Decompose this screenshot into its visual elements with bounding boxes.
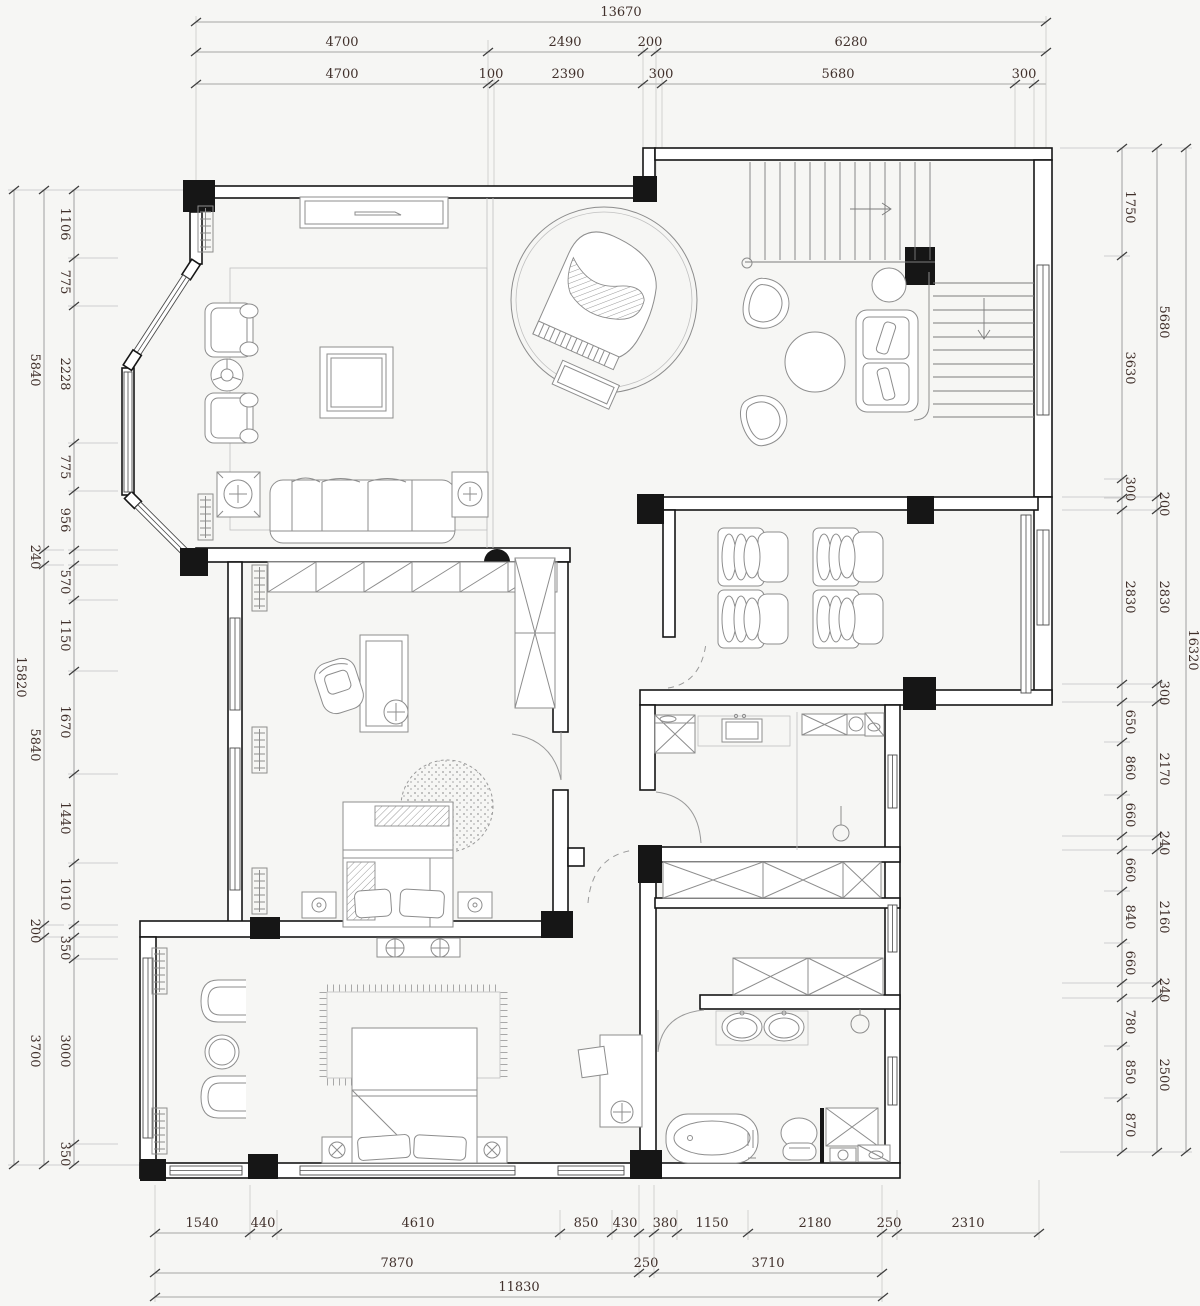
dim-label: 2310 xyxy=(951,1216,984,1231)
dim-label: 5840 xyxy=(27,353,42,386)
dim-label: 250 xyxy=(634,1256,659,1271)
loveseat xyxy=(856,310,918,412)
dim-label: 2830 xyxy=(1156,580,1171,613)
dim-label: 840 xyxy=(1122,905,1137,930)
furniture-living-room xyxy=(205,197,488,543)
door-bath-mid xyxy=(656,792,701,843)
dim-label: 300 xyxy=(1156,681,1171,706)
dim-label: 780 xyxy=(1122,1010,1137,1035)
dim-label: 1750 xyxy=(1122,190,1137,223)
sofa xyxy=(270,478,455,543)
dim-label: 15820 xyxy=(13,656,28,697)
grand-piano xyxy=(517,222,673,409)
round-table xyxy=(205,1035,239,1069)
lounge-chair xyxy=(735,388,794,450)
dim-label: 1540 xyxy=(185,1216,218,1231)
laundry-cabinet xyxy=(802,713,884,736)
furniture-bottom-bath xyxy=(666,1009,890,1163)
armchair xyxy=(205,393,258,443)
dim-label: 250 xyxy=(877,1216,902,1231)
dim-label: 650 xyxy=(1122,710,1137,735)
dimensions-left: 15820 5840 240 5840 200 3700 1106 775 22… xyxy=(8,186,196,1169)
dim-label: 200 xyxy=(638,35,663,50)
dim-label: 775 xyxy=(57,270,72,295)
recliner-chair xyxy=(718,528,788,586)
dim-label: 350 xyxy=(57,1142,72,1167)
radiator-icon xyxy=(252,565,267,611)
floor-drain-icon xyxy=(833,806,849,841)
dim-label: 380 xyxy=(653,1216,678,1231)
dim-label: 4700 xyxy=(325,67,358,82)
dim-label: 660 xyxy=(1122,858,1137,883)
shower-glass xyxy=(826,1108,878,1146)
small-table xyxy=(872,268,906,302)
dim-label: 240 xyxy=(1156,831,1171,856)
coffee-table xyxy=(320,347,393,418)
dim-label: 2500 xyxy=(1156,1058,1171,1091)
dim-label: 4700 xyxy=(325,35,358,50)
dim-label: 13670 xyxy=(600,5,641,20)
radiator-icon xyxy=(252,868,267,914)
dim-label: 850 xyxy=(1122,1060,1137,1085)
furniture-middle-bath xyxy=(655,712,884,898)
dim-label: 240 xyxy=(27,545,42,570)
toilet xyxy=(781,1118,817,1160)
dim-label: 5680 xyxy=(821,67,854,82)
dim-label: 7870 xyxy=(380,1256,413,1271)
floor-plan-canvas: 13670 4700 2490 200 6280 4700 100 2390 3… xyxy=(0,0,1200,1306)
wardrobe-tall xyxy=(515,558,555,708)
floor-plan-drawing: 13670 4700 2490 200 6280 4700 100 2390 3… xyxy=(0,0,1200,1306)
dim-label: 430 xyxy=(613,1216,638,1231)
dim-label: 3000 xyxy=(57,1034,72,1067)
furniture-dressing xyxy=(733,958,883,995)
nightstand xyxy=(322,1137,352,1163)
dim-label: 200 xyxy=(1156,492,1171,517)
round-table xyxy=(785,332,845,392)
stairs-down-arrow-icon xyxy=(978,298,990,339)
stairs-up-arrow-icon xyxy=(850,203,891,215)
recliner-chair xyxy=(813,590,883,648)
dim-label: 775 xyxy=(57,455,72,480)
dim-label: 350 xyxy=(57,936,72,961)
writing-desk xyxy=(578,1035,642,1127)
dim-label: 300 xyxy=(1012,67,1037,82)
door-bath-bottom xyxy=(658,1010,704,1052)
dim-label: 300 xyxy=(649,67,674,82)
tv-cabinet xyxy=(300,197,448,228)
door-bedroom-mid xyxy=(512,732,561,780)
dim-label: 100 xyxy=(479,67,504,82)
dim-label: 660 xyxy=(1122,951,1137,976)
dim-label: 3700 xyxy=(27,1034,42,1067)
sink-cabinet xyxy=(655,715,695,753)
dim-label: 570 xyxy=(57,570,72,595)
recliner-chair xyxy=(813,528,883,586)
shower-corner-sink xyxy=(830,1145,890,1162)
dim-label: 3630 xyxy=(1122,351,1137,384)
dim-label: 4610 xyxy=(401,1216,434,1231)
dimensions-top: 13670 4700 2490 200 6280 4700 100 2390 3… xyxy=(191,5,1051,198)
dim-label: 440 xyxy=(251,1216,276,1231)
side-round-table xyxy=(211,359,243,391)
sofa-side-table xyxy=(452,472,488,517)
dim-label: 1106 xyxy=(57,207,72,240)
furniture-middle-bedroom xyxy=(252,558,557,927)
door-corridor xyxy=(588,850,634,903)
dim-label: 1150 xyxy=(695,1216,728,1231)
wardrobe-top xyxy=(268,562,557,592)
dim-label: 2830 xyxy=(1122,580,1137,613)
reading-chair xyxy=(201,980,246,1022)
desk xyxy=(360,635,408,732)
dim-label: 2180 xyxy=(798,1216,831,1231)
dim-label: 2160 xyxy=(1156,900,1171,933)
radiator-icon xyxy=(252,727,267,773)
dimensions-bottom: 1540 440 4610 850 430 380 1150 2180 250 … xyxy=(150,1180,1044,1302)
bathtub xyxy=(666,1114,758,1163)
dim-label: 1670 xyxy=(57,705,72,738)
desk-chair xyxy=(311,655,367,717)
furniture-family-room xyxy=(718,528,883,648)
double-vanity xyxy=(716,1011,808,1045)
lounge-chair xyxy=(738,274,794,334)
dim-label: 660 xyxy=(1122,803,1137,828)
dim-label: 5680 xyxy=(1156,305,1171,338)
dim-label: 2228 xyxy=(57,357,72,390)
dim-label: 1010 xyxy=(57,877,72,910)
door-family-room xyxy=(668,643,706,688)
dim-label: 300 xyxy=(1122,477,1137,502)
dresser xyxy=(377,938,460,957)
dim-label: 200 xyxy=(27,919,42,944)
dim-label: 240 xyxy=(1156,978,1171,1003)
dim-label: 956 xyxy=(57,508,72,533)
armchair xyxy=(205,303,258,357)
dim-label: 860 xyxy=(1122,756,1137,781)
dim-label: 870 xyxy=(1122,1113,1137,1138)
dim-label: 2390 xyxy=(551,67,584,82)
dim-label: 850 xyxy=(574,1216,599,1231)
closet-row xyxy=(663,862,881,898)
dim-label: 16320 xyxy=(1185,629,1200,670)
dim-label: 1150 xyxy=(57,618,72,651)
bay-wall-upper xyxy=(123,259,200,370)
nightstand xyxy=(477,1137,507,1163)
dim-label: 6280 xyxy=(834,35,867,50)
dim-label: 2490 xyxy=(548,35,581,50)
nightstand xyxy=(458,892,492,918)
bed-master xyxy=(352,1028,477,1163)
dimensions-right: 1750 3630 300 2830 650 860 660 660 840 6… xyxy=(1060,144,1200,1156)
nightstand xyxy=(302,892,336,918)
reading-chair xyxy=(201,1076,246,1118)
dim-label: 5840 xyxy=(27,728,42,761)
dim-label: 3710 xyxy=(751,1256,784,1271)
furniture-lounge xyxy=(735,268,918,450)
radiator-icon xyxy=(198,494,213,540)
recliner-chair xyxy=(718,590,788,648)
dim-label: 1440 xyxy=(57,801,72,834)
sofa-side-table xyxy=(217,472,260,517)
towel-ring-icon xyxy=(851,1009,869,1033)
dim-label: 2170 xyxy=(1156,752,1171,785)
counter-sink xyxy=(698,714,790,746)
dim-label: 11830 xyxy=(498,1280,539,1295)
bed-middle xyxy=(343,802,453,927)
furniture-piano-area xyxy=(511,207,697,409)
